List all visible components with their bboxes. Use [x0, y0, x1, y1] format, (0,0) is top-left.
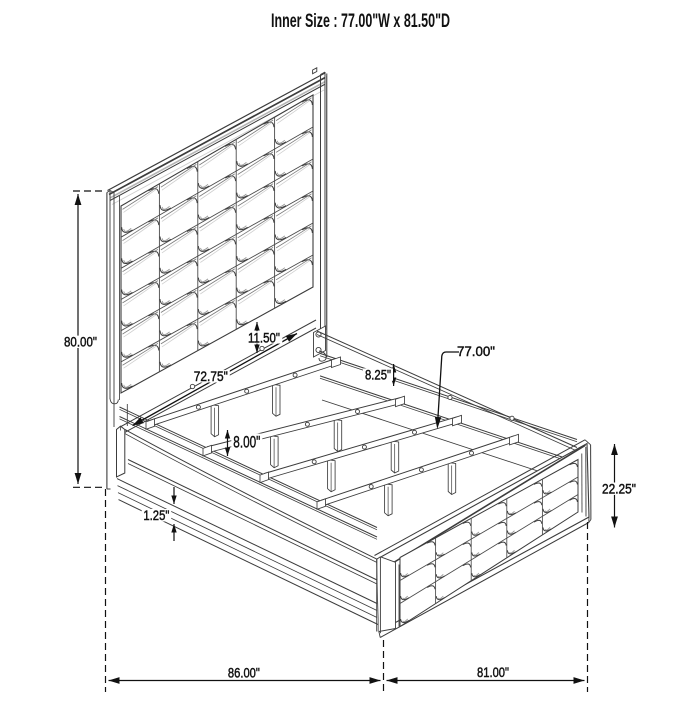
svg-text:11.50": 11.50": [248, 330, 280, 345]
svg-text:80.00": 80.00": [64, 335, 97, 350]
svg-text:22.25": 22.25": [602, 482, 636, 497]
svg-text:8.00": 8.00": [233, 433, 260, 452]
svg-text:86.00": 86.00": [228, 665, 260, 680]
svg-text:8.25": 8.25": [365, 368, 391, 383]
svg-text:77.00": 77.00": [457, 344, 495, 359]
svg-text:1.25": 1.25": [143, 508, 169, 523]
svg-text:72.75": 72.75": [194, 369, 228, 384]
svg-text:Inner Size : 77.00"W x 81.50"D: Inner Size : 77.00"W x 81.50"D: [271, 10, 450, 32]
svg-text:81.00": 81.00": [477, 665, 509, 680]
